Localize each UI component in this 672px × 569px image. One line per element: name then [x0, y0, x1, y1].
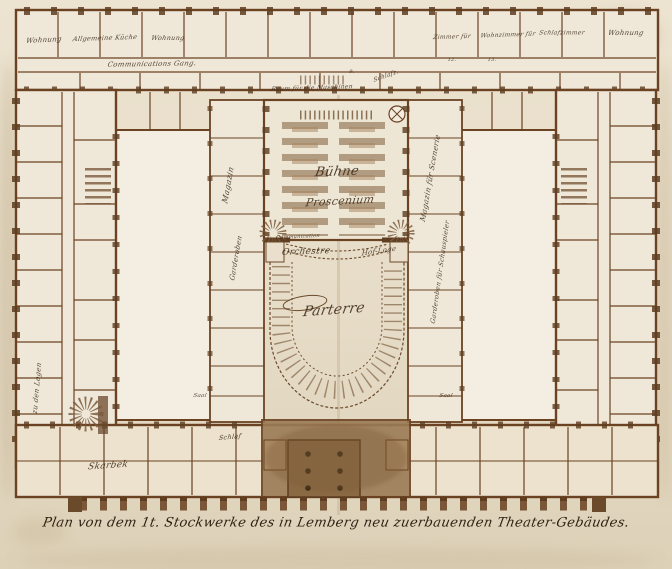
floor-plan-drawing: [0, 0, 672, 569]
floor-plan-page: Wohnung Allgemeine Küche Wohnung Communi…: [0, 0, 672, 569]
top-wing: [16, 10, 658, 90]
right-wing: [556, 90, 656, 468]
stage-area: [264, 100, 410, 242]
plan-caption: Plan von dem 1t. Stockwerke des in Lembe…: [41, 516, 630, 531]
